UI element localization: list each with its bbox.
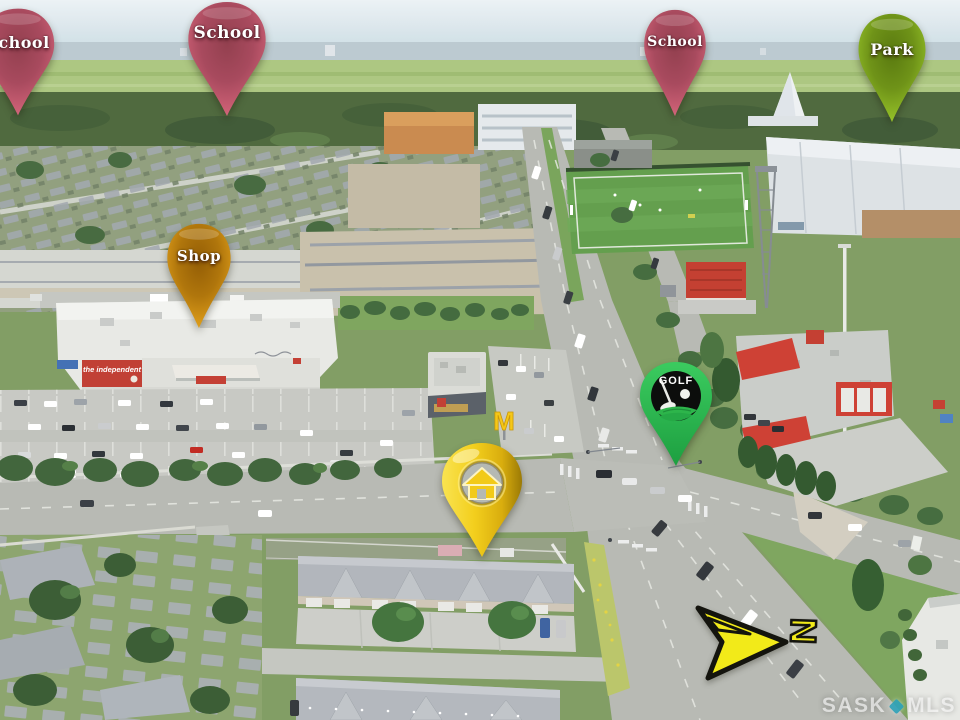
watermark-mls: MLS: [907, 694, 956, 718]
mls-diamond-icon: [889, 698, 905, 714]
north-arrow: N: [694, 596, 844, 688]
sask-mls-watermark: SASK MLS: [822, 694, 956, 718]
north-letter: N: [782, 617, 825, 644]
watermark-sask: SASK: [822, 694, 886, 718]
north-arrow-icon: [694, 596, 794, 686]
aerial-listing-photo: the independent: [0, 0, 960, 720]
